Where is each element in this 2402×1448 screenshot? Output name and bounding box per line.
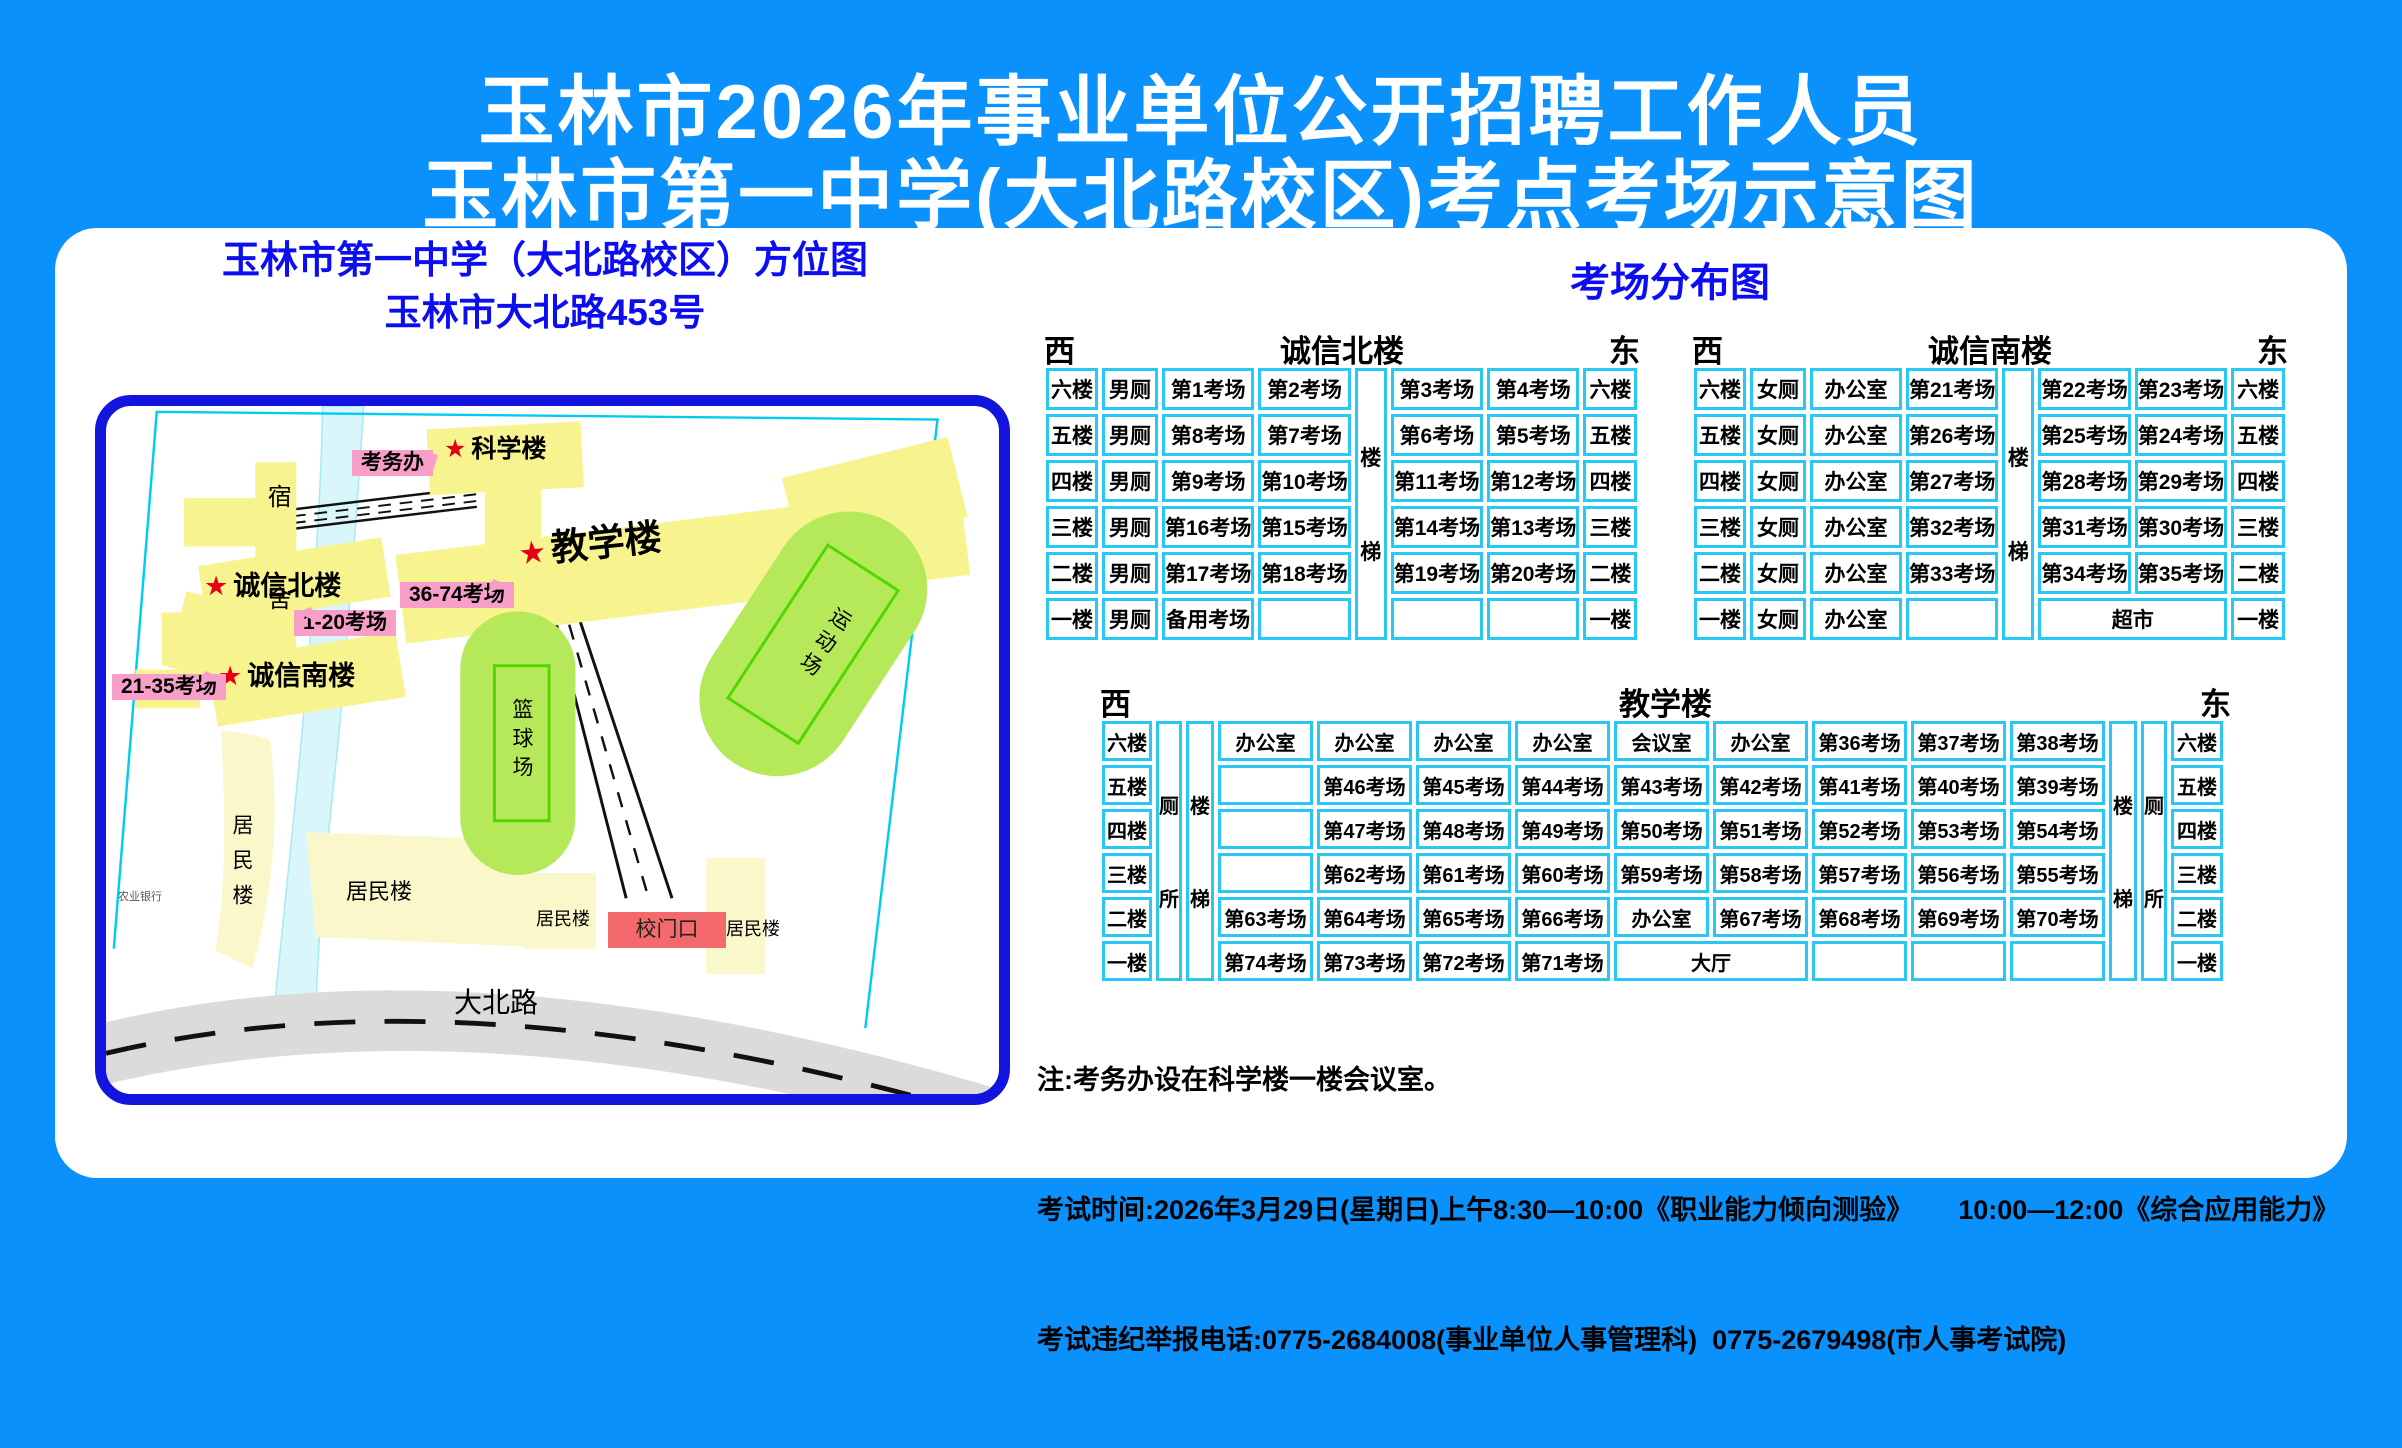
table-cell: 五楼 — [1583, 414, 1637, 456]
table-cell: 第49考场 — [1515, 809, 1610, 849]
table-cell: 第64考场 — [1317, 897, 1412, 937]
table-cell: 超市 — [2038, 598, 2227, 640]
table-cell: 一楼 — [2171, 941, 2223, 981]
table-cell — [1812, 941, 1907, 981]
table-cell: 男厕 — [1102, 552, 1158, 594]
rooms-21-35-label: 21-35考场 — [112, 674, 226, 700]
campus-map: 宿舍 考务办 ★科学楼 ★教学楼 36-74考场 ★诚信北楼 1-20考场 ★诚… — [95, 395, 1010, 1105]
table-teaching-header: 西教学楼东 — [1098, 679, 2233, 715]
table-cell: 厕所 — [1156, 721, 1182, 981]
east-label: 东 — [2257, 326, 2288, 371]
table-cell: 楼梯 — [2109, 721, 2137, 981]
table-cell: 四楼 — [2171, 809, 2223, 849]
table-cell: 一楼 — [1694, 598, 1746, 640]
table-cell: 第5考场 — [1487, 414, 1579, 456]
table-cell: 男厕 — [1102, 460, 1158, 502]
table-cell: 一楼 — [1583, 598, 1637, 640]
star-icon: ★ — [517, 534, 548, 572]
table-cell: 女厕 — [1750, 368, 1806, 410]
table-cell: 六楼 — [1583, 368, 1637, 410]
table-cell: 女厕 — [1750, 460, 1806, 502]
school-gate-label: 校门口 — [608, 912, 726, 948]
east-label: 东 — [1609, 326, 1640, 371]
table-cell: 女厕 — [1750, 506, 1806, 548]
table-cell: 会议室 — [1614, 721, 1709, 761]
table-cell: 办公室 — [1317, 721, 1412, 761]
table-cell: 第19考场 — [1391, 552, 1483, 594]
table-chengxin-south: 西诚信南楼东六楼女厕办公室第21考场楼梯第22考场第23考场六楼五楼女厕办公室第… — [1690, 326, 2290, 644]
table-cell: 男厕 — [1102, 414, 1158, 456]
table-cell: 二楼 — [1102, 897, 1152, 937]
table-teaching-grid: 六楼厕所楼梯办公室办公室办公室办公室会议室办公室第36考场第37考场第38考场楼… — [1098, 717, 2227, 985]
table-cell: 第11考场 — [1391, 460, 1483, 502]
table-cell: 第61考场 — [1416, 853, 1511, 893]
table-cell: 一楼 — [1102, 941, 1152, 981]
table-cell: 第46考场 — [1317, 765, 1412, 805]
note-line3: 考试违纪举报电话:0775-2684008(事业单位人事管理科) 0775-26… — [1037, 1318, 2339, 1357]
rooms-1-20-label: 1-20考场 — [294, 610, 396, 636]
table-cell: 第45考场 — [1416, 765, 1511, 805]
table-cell: 五楼 — [2171, 765, 2223, 805]
table-cell: 第67考场 — [1713, 897, 1808, 937]
table-cell: 三楼 — [1102, 853, 1152, 893]
table-cell: 楼梯 — [2002, 368, 2034, 640]
table-cell: 第74考场 — [1218, 941, 1313, 981]
table-cell — [1487, 598, 1579, 640]
dabei-road — [106, 990, 999, 1094]
table-cell: 第16考场 — [1162, 506, 1254, 548]
table-cell: 五楼 — [1102, 765, 1152, 805]
table-cell: 楼梯 — [1186, 721, 1214, 981]
table-cell: 第33考场 — [1906, 552, 1998, 594]
table-cell: 办公室 — [1810, 460, 1902, 502]
map-heading: 玉林市第一中学（大北路校区）方位图 玉林市大北路453号 — [205, 242, 885, 331]
table-cell: 第66考场 — [1515, 897, 1610, 937]
table-cell: 第56考场 — [1911, 853, 2006, 893]
table-cell: 第30考场 — [2135, 506, 2227, 548]
table-cell: 第14考场 — [1391, 506, 1483, 548]
table-cell: 六楼 — [1694, 368, 1746, 410]
table-cell: 六楼 — [1102, 721, 1152, 761]
table-cell: 第27考场 — [1906, 460, 1998, 502]
rooms-36-74-label: 36-74考场 — [400, 582, 514, 608]
table-cell: 第50考场 — [1614, 809, 1709, 849]
table-teaching: 西教学楼东六楼厕所楼梯办公室办公室办公室办公室会议室办公室第36考场第37考场第… — [1098, 679, 2233, 985]
note-line1: 注:考务办设在科学楼一楼会议室。 — [1037, 1058, 2339, 1097]
residential-gate-right-label: 居民楼 — [726, 920, 780, 939]
table-cell: 第36考场 — [1812, 721, 1907, 761]
table-cell: 三楼 — [1583, 506, 1637, 548]
table-cell: 男厕 — [1102, 506, 1158, 548]
table-cell: 三楼 — [1046, 506, 1098, 548]
table-cell: 第69考场 — [1911, 897, 2006, 937]
dabei-road-label: 大北路 — [454, 988, 538, 1017]
building-name: 教学楼 — [1098, 679, 2233, 724]
table-cell: 二楼 — [2231, 552, 2285, 594]
table-cell: 第71考场 — [1515, 941, 1610, 981]
table-cell: 第55考场 — [2010, 853, 2105, 893]
table-cell: 第51考场 — [1713, 809, 1808, 849]
table-cell — [1911, 941, 2006, 981]
poster: { "page":{"bg":"#0A91FB","accent_blue":"… — [0, 0, 2402, 1201]
table-cell: 三楼 — [2171, 853, 2223, 893]
table-cell: 第59考场 — [1614, 853, 1709, 893]
table-cell: 第47考场 — [1317, 809, 1412, 849]
table-cell: 第40考场 — [1911, 765, 2006, 805]
table-cell: 第20考场 — [1487, 552, 1579, 594]
table-cell: 第72考场 — [1416, 941, 1511, 981]
table-cell: 四楼 — [1694, 460, 1746, 502]
table-cell: 第38考场 — [2010, 721, 2105, 761]
table-cell — [1218, 853, 1313, 893]
table-cell: 第58考场 — [1713, 853, 1808, 893]
table-cell: 第73考场 — [1317, 941, 1412, 981]
table-cell: 男厕 — [1102, 368, 1158, 410]
table-cell: 第2考场 — [1258, 368, 1350, 410]
table-cell: 四楼 — [1583, 460, 1637, 502]
table-cell: 第41考场 — [1812, 765, 1907, 805]
table-cell: 大厅 — [1614, 941, 1808, 981]
table-cell: 办公室 — [1810, 368, 1902, 410]
table-cell: 第21考场 — [1906, 368, 1998, 410]
table-cell: 第28考场 — [2038, 460, 2130, 502]
table-cell: 第3考场 — [1391, 368, 1483, 410]
exam-office-label: 考务办 — [352, 450, 433, 476]
table-cell: 办公室 — [1614, 897, 1709, 937]
table-cell: 第54考场 — [2010, 809, 2105, 849]
table-cell — [2010, 941, 2105, 981]
table-cell: 一楼 — [2231, 598, 2285, 640]
table-cell: 第18考场 — [1258, 552, 1350, 594]
bank-label: 农业银行 — [118, 892, 162, 904]
table-cell — [1906, 598, 1998, 640]
table-cell: 第13考场 — [1487, 506, 1579, 548]
table-chengxin-north-header: 西诚信北楼东 — [1042, 326, 1642, 362]
table-cell: 男厕 — [1102, 598, 1158, 640]
table-cell: 五楼 — [1694, 414, 1746, 456]
table-cell: 办公室 — [1810, 414, 1902, 456]
table-cell: 第35考场 — [2135, 552, 2227, 594]
table-cell: 四楼 — [2231, 460, 2285, 502]
table-cell: 第65考场 — [1416, 897, 1511, 937]
table-cell: 三楼 — [1694, 506, 1746, 548]
chengxin-north-label: ★诚信北楼 — [204, 572, 341, 600]
table-cell: 第62考场 — [1317, 853, 1412, 893]
table-cell: 第34考场 — [2038, 552, 2130, 594]
science-building-text: 科学楼 — [471, 435, 546, 463]
table-chengxin-south-grid: 六楼女厕办公室第21考场楼梯第22考场第23考场六楼五楼女厕办公室第26考场第2… — [1690, 364, 2289, 644]
table-cell: 二楼 — [2171, 897, 2223, 937]
table-cell: 三楼 — [2231, 506, 2285, 548]
table-cell: 第60考场 — [1515, 853, 1610, 893]
table-cell: 备用考场 — [1162, 598, 1254, 640]
table-cell: 第52考场 — [1812, 809, 1907, 849]
table-cell: 六楼 — [2231, 368, 2285, 410]
table-cell: 二楼 — [1046, 552, 1098, 594]
table-cell: 办公室 — [1713, 721, 1808, 761]
table-cell: 二楼 — [1694, 552, 1746, 594]
east-label: 东 — [2200, 679, 2231, 724]
table-cell: 第8考场 — [1162, 414, 1254, 456]
note-line2: 考试时间:2026年3月29日(星期日)上午8:30—10:00《职业能力倾向测… — [1037, 1188, 2339, 1227]
table-cell: 第42考场 — [1713, 765, 1808, 805]
table-cell: 第7考场 — [1258, 414, 1350, 456]
table-cell: 办公室 — [1810, 552, 1902, 594]
table-cell: 五楼 — [2231, 414, 2285, 456]
building-name: 诚信北楼 — [1042, 326, 1642, 371]
table-cell: 六楼 — [2171, 721, 2223, 761]
residential-left-label: 居民楼 — [230, 814, 252, 919]
distribution-heading: 考场分布图 — [1070, 250, 2270, 308]
table-chengxin-north: 西诚信北楼东六楼男厕第1考场第2考场楼梯第3考场第4考场六楼五楼男厕第8考场第7… — [1042, 326, 1642, 644]
table-cell: 第15考场 — [1258, 506, 1350, 548]
table-cell: 办公室 — [1515, 721, 1610, 761]
table-cell: 第44考场 — [1515, 765, 1610, 805]
table-cell: 第63考场 — [1218, 897, 1313, 937]
table-cell — [1258, 598, 1350, 640]
table-cell: 四楼 — [1102, 809, 1152, 849]
residential-mid-label: 居民楼 — [346, 880, 412, 903]
chengxin-north-text: 诚信北楼 — [233, 571, 341, 601]
table-chengxin-north-grid: 六楼男厕第1考场第2考场楼梯第3考场第4考场六楼五楼男厕第8考场第7考场第6考场… — [1042, 364, 1641, 644]
map-heading-line1: 玉林市第一中学（大北路校区）方位图 — [205, 242, 885, 280]
table-cell: 第32考场 — [1906, 506, 1998, 548]
table-cell: 第39考场 — [2010, 765, 2105, 805]
table-cell: 第26考场 — [1906, 414, 1998, 456]
table-cell: 二楼 — [1583, 552, 1637, 594]
table-cell: 第70考场 — [2010, 897, 2105, 937]
residential-gate-left-label: 居民楼 — [536, 910, 590, 929]
chengxin-south-label: ★诚信南楼 — [218, 662, 355, 690]
campus-map-shapes — [106, 406, 999, 1094]
table-chengxin-south-header: 西诚信南楼东 — [1690, 326, 2290, 362]
table-cell: 一楼 — [1046, 598, 1098, 640]
table-cell: 第24考场 — [2135, 414, 2227, 456]
table-cell: 第17考场 — [1162, 552, 1254, 594]
table-cell: 第23考场 — [2135, 368, 2227, 410]
table-cell: 第31考场 — [2038, 506, 2130, 548]
basketball-court-label: 篮球场 — [510, 698, 532, 785]
table-cell: 第53考场 — [1911, 809, 2006, 849]
star-icon: ★ — [444, 435, 466, 463]
table-cell: 厕所 — [2141, 721, 2167, 981]
table-cell — [1218, 809, 1313, 849]
table-cell: 女厕 — [1750, 414, 1806, 456]
table-cell: 第9考场 — [1162, 460, 1254, 502]
chengxin-south-text: 诚信南楼 — [247, 661, 355, 691]
table-cell — [1218, 765, 1313, 805]
notes: 注:考务办设在科学楼一楼会议室。 考试时间:2026年3月29日(星期日)上午8… — [1037, 996, 2339, 1448]
table-cell: 五楼 — [1046, 414, 1098, 456]
table-cell: 第37考场 — [1911, 721, 2006, 761]
table-cell: 第29考场 — [2135, 460, 2227, 502]
table-cell: 办公室 — [1810, 598, 1902, 640]
table-cell: 女厕 — [1750, 552, 1806, 594]
table-cell: 办公室 — [1218, 721, 1313, 761]
table-cell: 第22考场 — [2038, 368, 2130, 410]
table-cell — [1391, 598, 1483, 640]
table-cell: 第12考场 — [1487, 460, 1579, 502]
table-cell: 楼梯 — [1355, 368, 1387, 640]
table-cell: 第48考场 — [1416, 809, 1511, 849]
table-cell: 四楼 — [1046, 460, 1098, 502]
table-cell: 第43考场 — [1614, 765, 1709, 805]
table-cell: 第4考场 — [1487, 368, 1579, 410]
table-cell: 第57考场 — [1812, 853, 1907, 893]
table-cell: 办公室 — [1810, 506, 1902, 548]
map-heading-line2: 玉林市大北路453号 — [205, 294, 885, 331]
table-cell: 第68考场 — [1812, 897, 1907, 937]
table-cell: 办公室 — [1416, 721, 1511, 761]
table-cell: 第1考场 — [1162, 368, 1254, 410]
table-cell: 第25考场 — [2038, 414, 2130, 456]
building-name: 诚信南楼 — [1690, 326, 2290, 371]
content-panel: 玉林市第一中学（大北路校区）方位图 玉林市大北路453号 — [55, 228, 2347, 1178]
table-cell: 第10考场 — [1258, 460, 1350, 502]
science-building-label: ★科学楼 — [444, 436, 546, 462]
table-cell: 女厕 — [1750, 598, 1806, 640]
table-cell: 六楼 — [1046, 368, 1098, 410]
table-cell: 第6考场 — [1391, 414, 1483, 456]
star-icon: ★ — [204, 571, 228, 601]
